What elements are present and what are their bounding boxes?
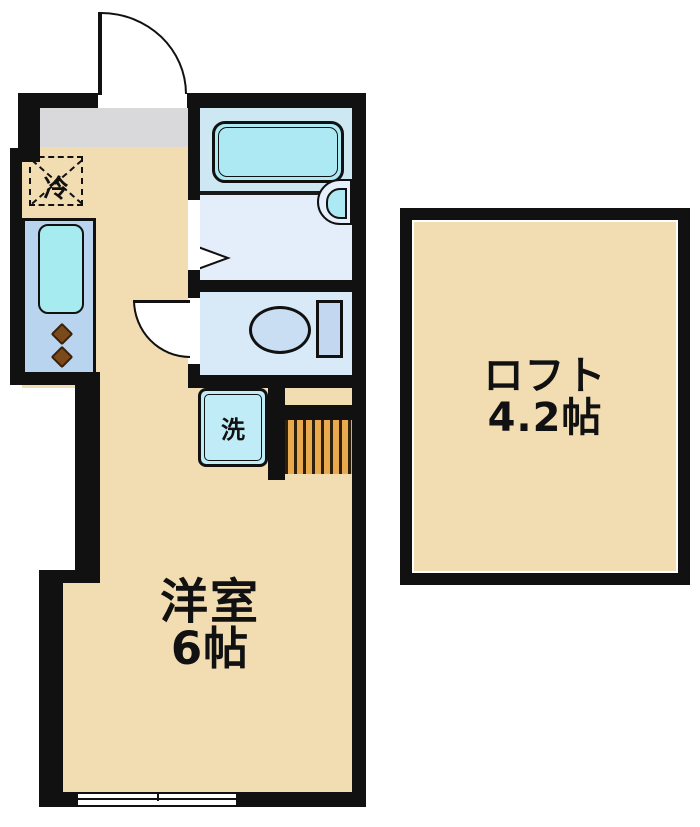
wall-partition-middle <box>188 270 200 300</box>
wall-right <box>352 93 366 807</box>
bathtub-inner-line <box>218 127 338 177</box>
loft-name-label: ロフト <box>484 355 607 397</box>
wall-washer-stub <box>268 383 285 480</box>
toilet-bowl-icon <box>249 306 311 354</box>
kitchen-sink-icon <box>38 224 84 314</box>
stove-burner-icon <box>51 346 74 369</box>
washing-machine: 洗 <box>198 388 268 467</box>
bathtub-icon <box>212 121 344 183</box>
window-center-tick <box>157 794 159 801</box>
main-room-size-label: 6帖 <box>85 626 335 671</box>
refrigerator-icon: 冷 <box>31 169 81 205</box>
bath-door-icon <box>197 246 231 270</box>
wall-left-middle <box>75 372 100 583</box>
entrance-opening <box>97 93 188 108</box>
window-icon <box>77 792 237 807</box>
entrance-door-leaf <box>98 12 102 95</box>
washbasin-bowl <box>326 188 347 219</box>
entrance-door-arc <box>101 12 187 94</box>
kitchen-unit <box>22 218 96 375</box>
toilet-tank-icon <box>316 300 343 358</box>
washing-machine-icon: 洗 <box>204 394 262 461</box>
wall-top-right <box>188 93 366 108</box>
wall-partition-upper <box>188 108 200 200</box>
loft-room: ロフト 4.2帖 <box>414 222 676 571</box>
wall-left-upper <box>18 93 40 153</box>
loft-ladder-icon <box>285 420 352 474</box>
entrance-floor <box>40 108 188 147</box>
main-room-label: 洋室 6帖 <box>85 578 335 671</box>
wall-bath-toilet <box>200 280 352 292</box>
main-room-name-label: 洋室 <box>85 578 335 626</box>
floor-plan: 冷 洗 <box>0 0 700 827</box>
wall-left-lower <box>39 570 63 807</box>
bathroom-door-opening <box>188 200 200 270</box>
wall-stairs-band <box>285 405 352 420</box>
refrigerator-space: 冷 <box>29 156 83 206</box>
stove-burner-icon <box>51 323 74 346</box>
loft-size-label: 4.2帖 <box>488 397 603 439</box>
wall-left-kitchen <box>10 148 22 385</box>
